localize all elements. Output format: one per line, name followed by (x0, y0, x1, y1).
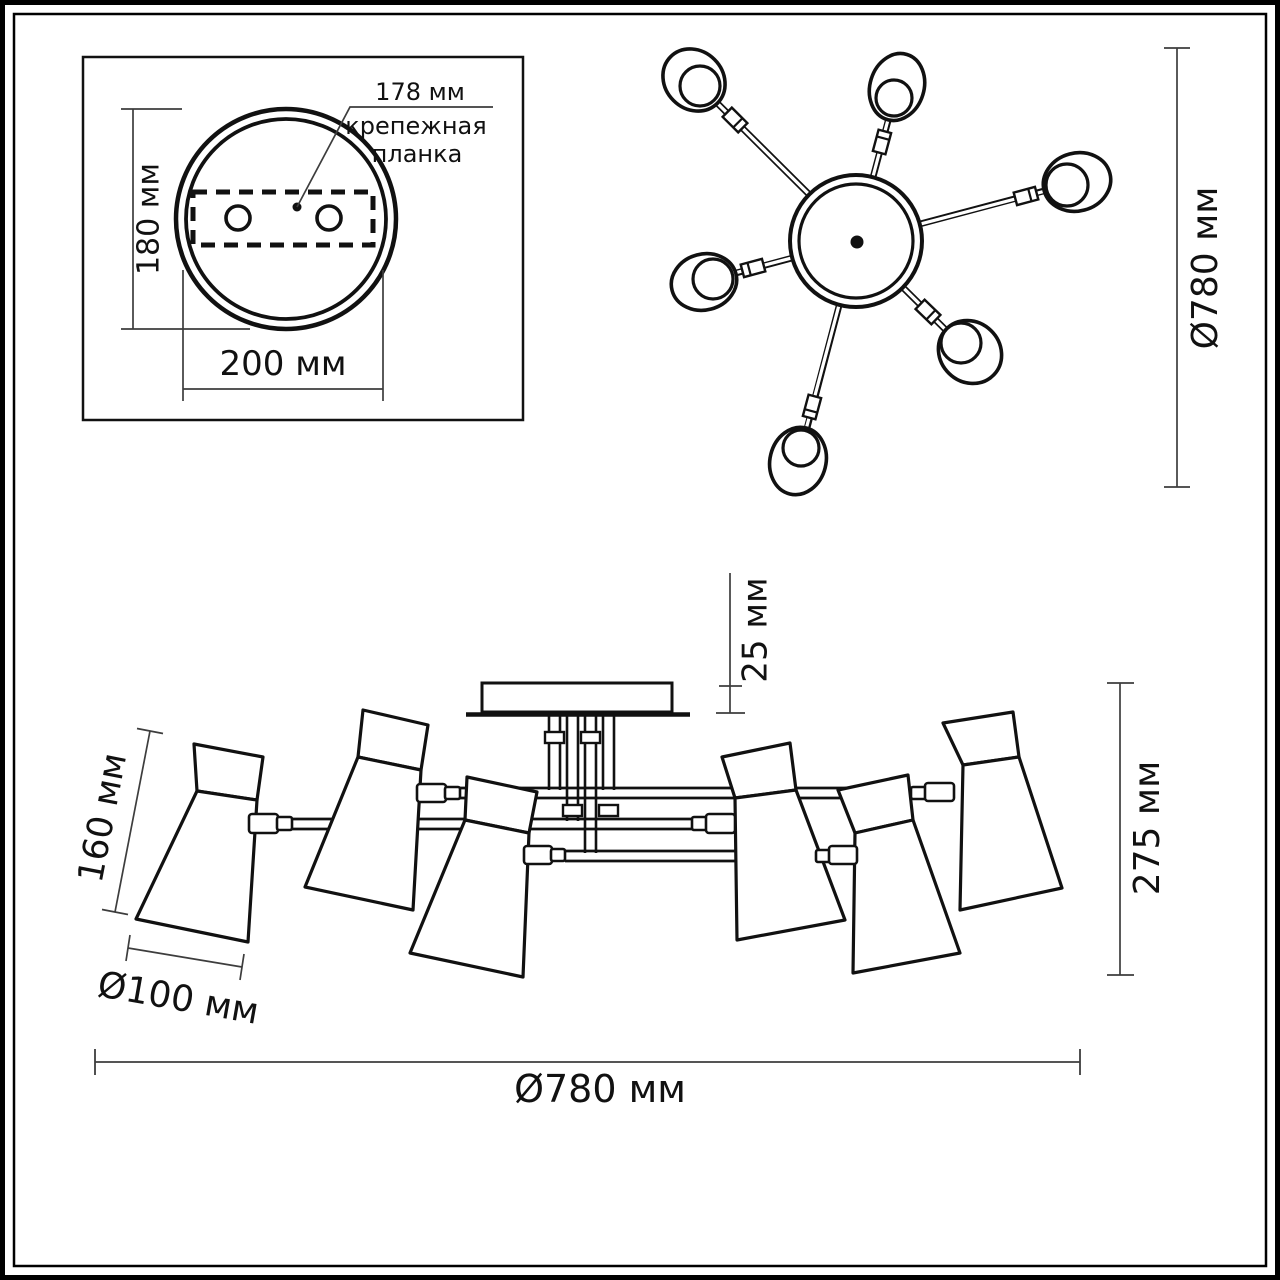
ceiling-plate (482, 683, 672, 712)
mounting-detail-inset: 178 мм крепежная планка 180 мм 200 мм (83, 57, 523, 420)
canopy-center-dot (851, 236, 864, 249)
chandelier-dimension-drawing: 178 мм крепежная планка 180 мм 200 мм (0, 0, 1280, 1280)
total-height-label: 275 мм (1127, 761, 1168, 895)
bar-name-line1: крепежная (345, 112, 486, 140)
top-diameter-label: Ø780 мм (1185, 187, 1226, 350)
bar-name-line2: планка (372, 140, 463, 168)
plate-width-label: 200 мм (219, 344, 346, 384)
bar-offset-label: 178 мм (375, 78, 465, 106)
canopy-height-label: 25 мм (736, 577, 776, 682)
plate-height-label: 180 мм (132, 163, 167, 275)
overall-diameter-label: Ø780 мм (514, 1067, 686, 1111)
